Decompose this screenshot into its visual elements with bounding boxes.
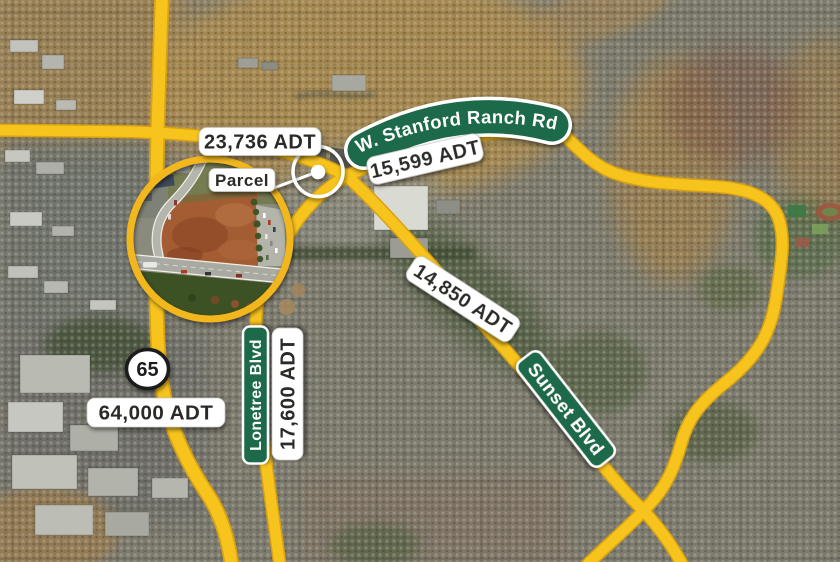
label-adt-lonetree: 17,600 ADT <box>272 328 303 460</box>
label-parcel: Parcel <box>209 169 275 192</box>
label-adt-stanford-west: 23,736 ADT <box>199 128 321 156</box>
sign-lonetree-text: Lonetree Blvd <box>248 339 265 451</box>
label-adt-stanford-west-text: 23,736 ADT <box>204 132 316 154</box>
label-adt-lonetree-text: 17,600 ADT <box>278 338 300 450</box>
label-adt-route65: 64,000 ADT <box>87 398 225 427</box>
map-canvas: W. Stanford Ranch Rd 23,736 ADT 15,599 A… <box>0 0 840 562</box>
route-65-shield: 65 <box>127 350 169 389</box>
aerial-traffic-map: W. Stanford Ranch Rd 23,736 ADT 15,599 A… <box>0 0 840 562</box>
label-adt-route65-text: 64,000 ADT <box>99 402 214 425</box>
route-65-text: 65 <box>136 359 158 381</box>
sign-lonetree: Lonetree Blvd <box>243 327 268 464</box>
callout-dot <box>311 165 325 179</box>
label-parcel-text: Parcel <box>215 171 269 190</box>
